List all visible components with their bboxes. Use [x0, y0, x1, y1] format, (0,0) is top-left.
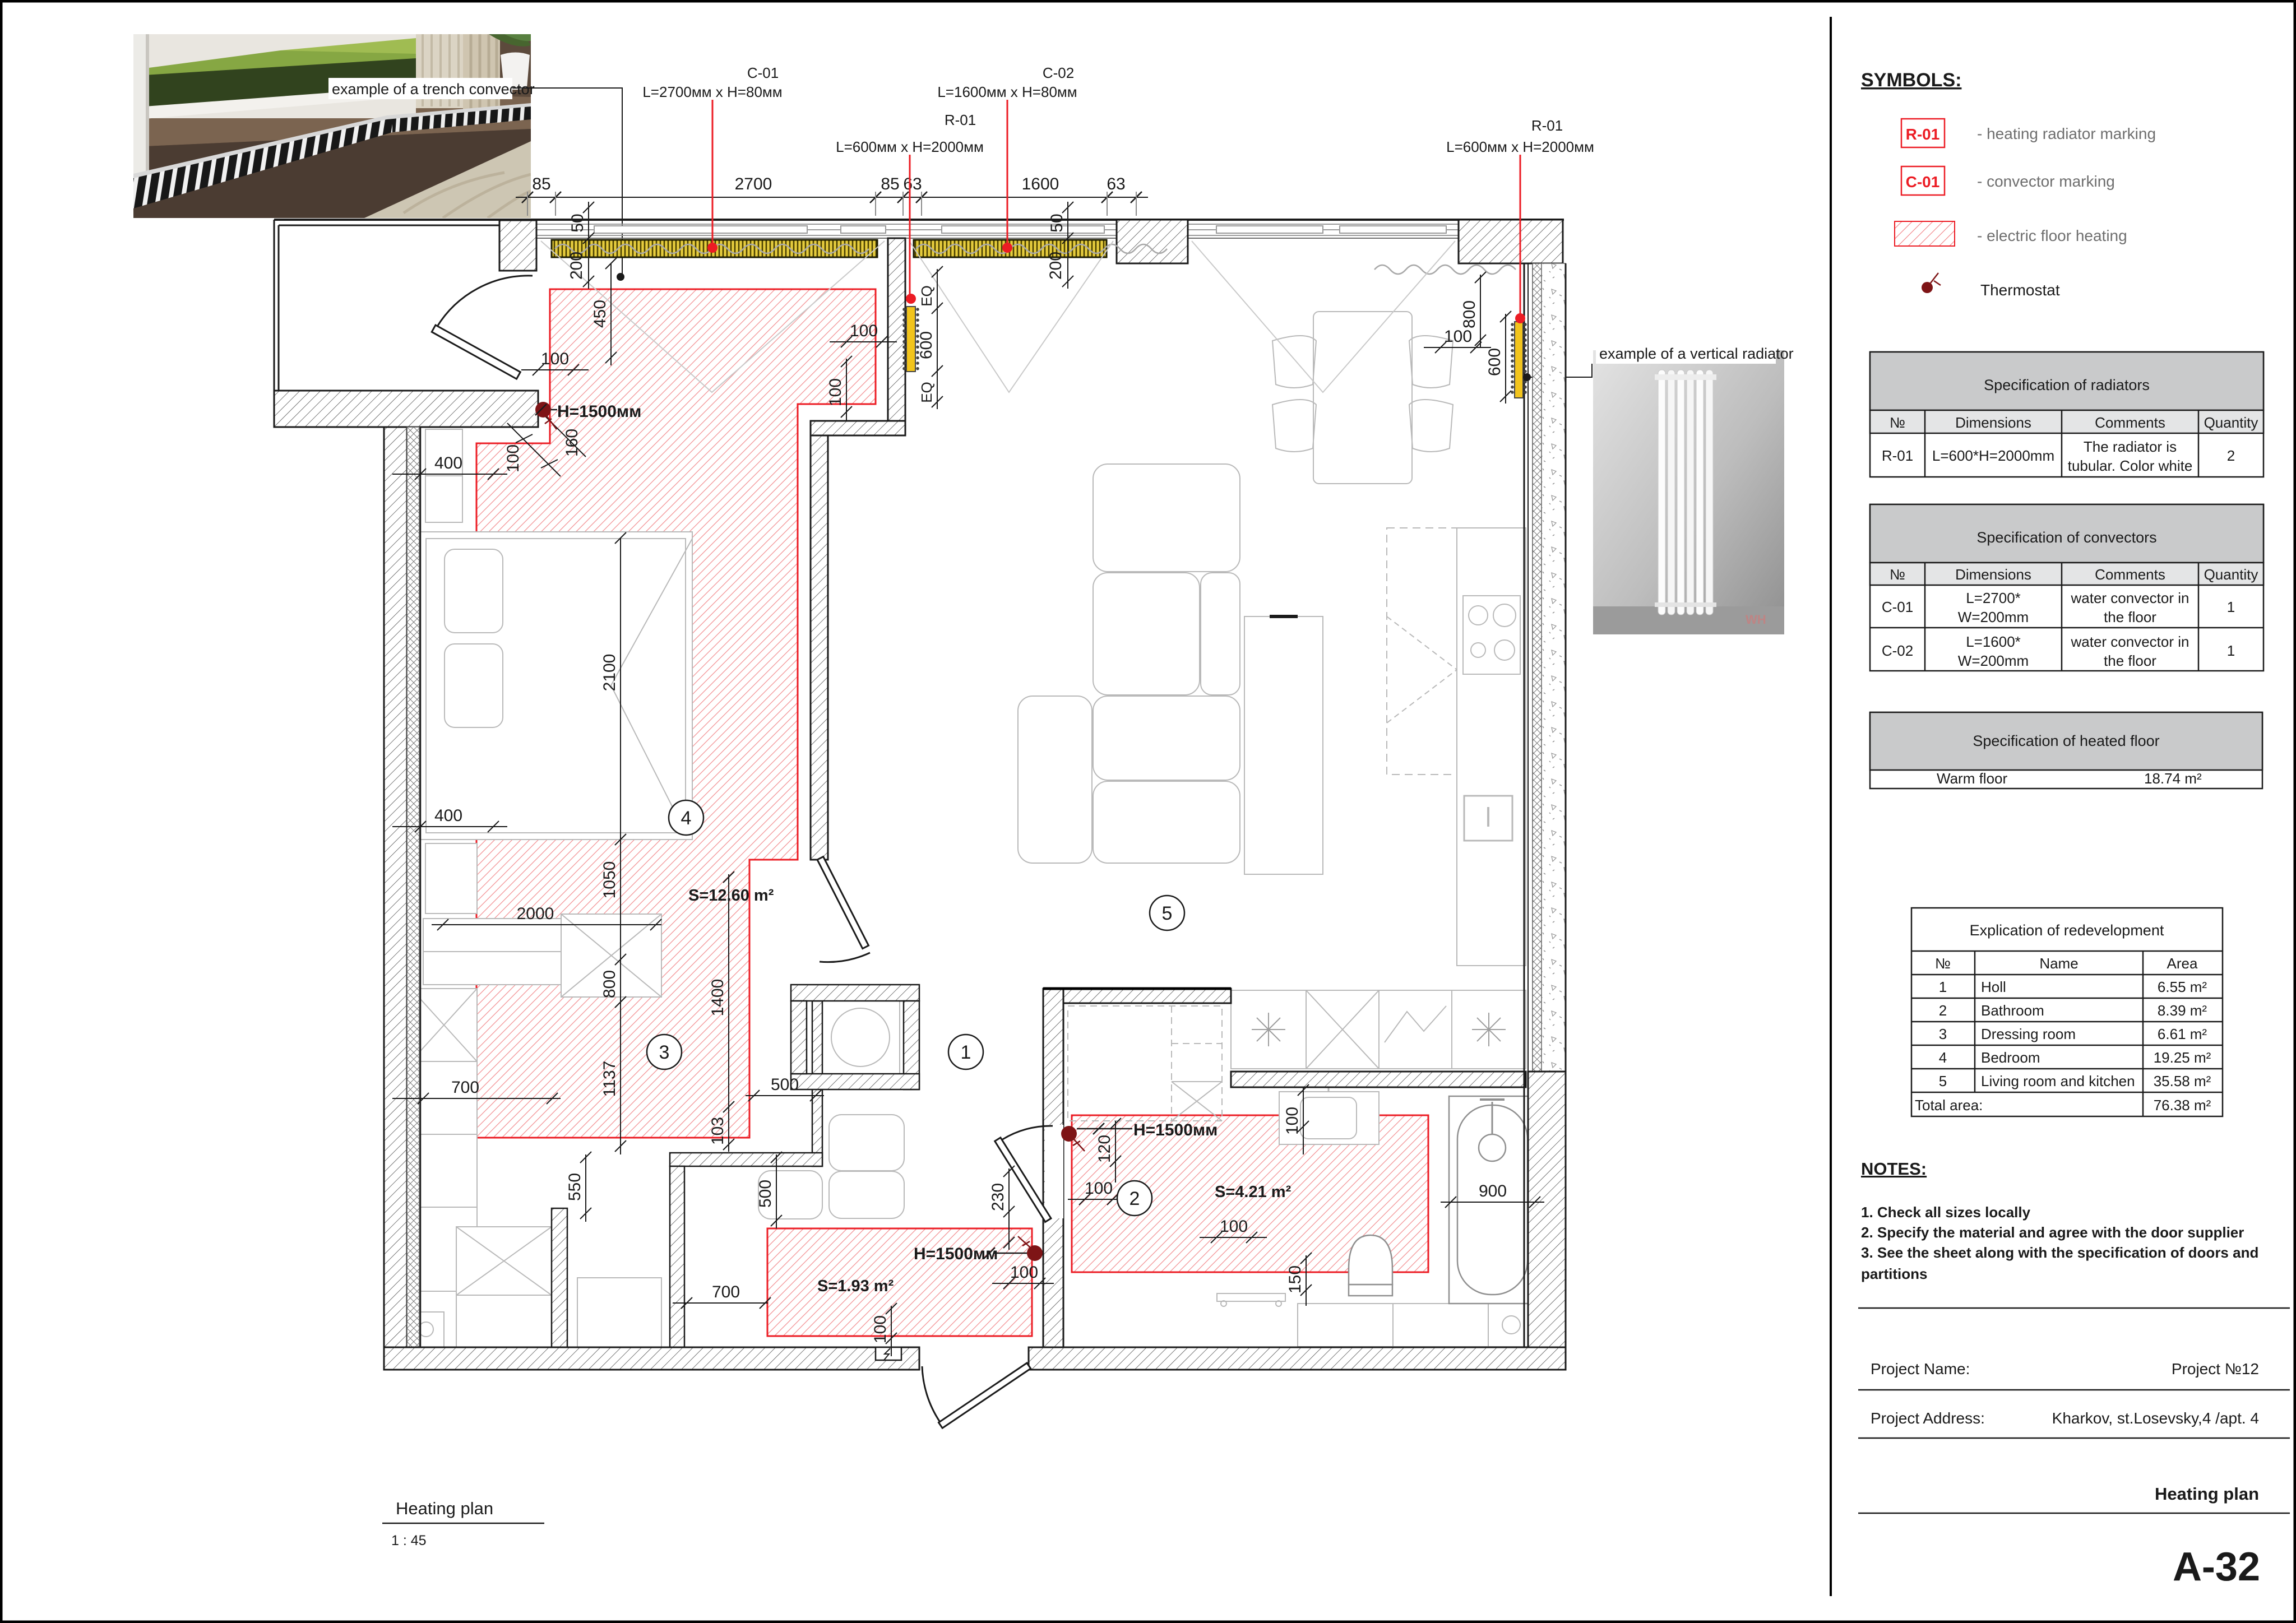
svg-text:500: 500: [756, 1180, 775, 1208]
svg-text:Specification of radiators: Specification of radiators: [1984, 377, 2150, 393]
svg-text:100: 100: [850, 322, 878, 340]
svg-text:800: 800: [1460, 300, 1479, 328]
svg-text:450: 450: [591, 300, 609, 328]
svg-text:1: 1: [961, 1042, 971, 1063]
svg-text:Holl: Holl: [1981, 979, 2006, 995]
svg-text:S=4.21 m²: S=4.21 m²: [1215, 1183, 1291, 1201]
svg-text:150: 150: [1286, 1265, 1304, 1293]
svg-text:50: 50: [1048, 214, 1066, 232]
svg-text:100: 100: [541, 350, 569, 368]
svg-text:1: 1: [2227, 642, 2235, 659]
svg-text:Dimensions: Dimensions: [1955, 414, 2031, 431]
svg-text:Bathroom: Bathroom: [1981, 1002, 2044, 1019]
svg-text:SYMBOLS:: SYMBOLS:: [1861, 69, 1961, 91]
svg-text:tubular. Color white: tubular. Color white: [2068, 457, 2193, 474]
svg-text:№: №: [1935, 955, 1951, 972]
svg-text:L=600мм x H=2000мм: L=600мм x H=2000мм: [836, 138, 984, 155]
svg-text:3: 3: [659, 1042, 670, 1063]
svg-text:1. Check all sizes locally: 1. Check all sizes locally: [1861, 1204, 2031, 1221]
svg-text:№: №: [1890, 566, 1905, 583]
svg-text:- heating radiator marking: - heating radiator marking: [1977, 125, 2156, 142]
svg-text:L=600*H=2000mm: L=600*H=2000mm: [1932, 447, 2054, 464]
svg-text:63: 63: [1107, 175, 1125, 193]
svg-text:900: 900: [1479, 1182, 1507, 1200]
svg-text:200: 200: [1047, 252, 1065, 280]
svg-text:76.38 m²: 76.38 m²: [2154, 1097, 2211, 1114]
svg-text:Dressing room: Dressing room: [1981, 1026, 2076, 1042]
svg-text:700: 700: [451, 1078, 479, 1097]
svg-text:EQ: EQ: [918, 382, 935, 403]
svg-text:1: 1: [1939, 979, 1947, 995]
svg-text:4: 4: [1939, 1049, 1947, 1066]
svg-text:2. Specify the material and ag: 2. Specify the material and agree with t…: [1861, 1224, 2244, 1241]
svg-text:Specification of convectors: Specification of convectors: [1976, 529, 2156, 546]
svg-text:R-01: R-01: [945, 112, 976, 128]
svg-text:L=1600*: L=1600*: [1966, 633, 2021, 650]
svg-text:100: 100: [1085, 1179, 1113, 1198]
svg-text:Heating plan: Heating plan: [2155, 1484, 2259, 1504]
svg-text:Comments: Comments: [2095, 414, 2165, 431]
svg-text:2100: 2100: [600, 654, 619, 692]
svg-text:H=1500мм: H=1500мм: [557, 402, 641, 421]
svg-text:H=1500мм: H=1500мм: [914, 1245, 998, 1263]
svg-text:103: 103: [709, 1117, 727, 1145]
svg-text:Thermostat: Thermostat: [1980, 281, 2060, 299]
svg-text:1050: 1050: [600, 861, 619, 899]
svg-text:550: 550: [566, 1173, 584, 1201]
svg-text:L=2700*: L=2700*: [1966, 590, 2021, 606]
svg-text:partitions: partitions: [1861, 1265, 1927, 1282]
svg-text:L=2700мм x H=80мм: L=2700мм x H=80мм: [642, 84, 782, 100]
svg-text:2000: 2000: [517, 905, 554, 923]
svg-text:Bedroom: Bedroom: [1981, 1049, 2040, 1066]
svg-text:3. See the sheet along with th: 3. See the sheet along with the specific…: [1861, 1244, 2258, 1261]
svg-text:1600: 1600: [1022, 175, 1059, 193]
svg-text:R-01: R-01: [1882, 447, 1913, 464]
svg-text:400: 400: [434, 806, 462, 825]
svg-text:Heating plan: Heating plan: [396, 1499, 493, 1518]
svg-text:600: 600: [917, 331, 936, 359]
svg-text:C-02: C-02: [1043, 64, 1074, 81]
svg-text:2700: 2700: [735, 175, 772, 193]
svg-text:Quantity: Quantity: [2204, 414, 2258, 431]
svg-text:Project Address:: Project Address:: [1871, 1409, 1985, 1427]
svg-text:NOTES:: NOTES:: [1861, 1159, 1927, 1179]
svg-text:Area: Area: [2167, 955, 2198, 972]
svg-text:C-01: C-01: [1882, 599, 1913, 615]
svg-text:1400: 1400: [709, 979, 727, 1017]
svg-text:example of a vertical radiator: example of a vertical radiator: [1599, 345, 1794, 362]
svg-text:S=1.93 m²: S=1.93 m²: [817, 1277, 894, 1295]
svg-text:Quantity: Quantity: [2204, 566, 2258, 583]
svg-text:example of a trench convector: example of a trench convector: [332, 81, 535, 98]
svg-text:Name: Name: [2039, 955, 2078, 972]
svg-text:1137: 1137: [600, 1061, 619, 1097]
svg-text:C-01: C-01: [747, 64, 779, 81]
svg-text:R-01: R-01: [1531, 117, 1563, 134]
svg-text:400: 400: [434, 454, 462, 472]
svg-text:L=600мм x H=2000мм: L=600мм x H=2000мм: [1446, 138, 1594, 155]
svg-text:Specification of heated floor: Specification of heated floor: [1973, 732, 2159, 749]
svg-text:Kharkov, st.Losevsky,4 /apt. 4: Kharkov, st.Losevsky,4 /apt. 4: [2052, 1409, 2259, 1427]
svg-text:6.55 m²: 6.55 m²: [2158, 979, 2207, 995]
svg-text:Living room and kitchen: Living room and kitchen: [1981, 1073, 2135, 1089]
svg-text:Comments: Comments: [2095, 566, 2165, 583]
svg-text:Explication of redevelopment: Explication of redevelopment: [1970, 922, 2164, 939]
svg-text:№: №: [1890, 414, 1905, 431]
svg-text:1: 1: [2227, 599, 2235, 615]
svg-text:4: 4: [681, 808, 692, 829]
svg-text:100: 100: [1444, 327, 1472, 346]
svg-text:water convector in: water convector in: [2071, 590, 2189, 606]
svg-text:Total area:: Total area:: [1915, 1097, 1983, 1114]
svg-text:Warm floor: Warm floor: [1937, 770, 2007, 787]
svg-text:230: 230: [989, 1183, 1007, 1211]
svg-text:100: 100: [504, 444, 522, 472]
svg-text:L=1600мм x H=80мм: L=1600мм x H=80мм: [937, 84, 1077, 100]
svg-text:800: 800: [600, 970, 619, 998]
svg-text:600: 600: [1485, 348, 1504, 376]
svg-text:85: 85: [881, 175, 899, 193]
svg-text:W=200mm: W=200mm: [1958, 609, 2029, 625]
svg-text:100: 100: [871, 1315, 890, 1343]
svg-text:3: 3: [1939, 1026, 1947, 1042]
svg-text:500: 500: [771, 1075, 799, 1094]
svg-text:water convector in: water convector in: [2071, 633, 2189, 650]
svg-text:2: 2: [1130, 1188, 1140, 1209]
svg-text:Project Name:: Project Name:: [1871, 1360, 1970, 1378]
svg-text:160: 160: [563, 429, 581, 457]
svg-text:200: 200: [567, 252, 586, 280]
svg-text:WH: WH: [1746, 613, 1766, 627]
svg-text:100: 100: [1220, 1217, 1248, 1236]
svg-text:63: 63: [903, 175, 922, 193]
svg-text:H=1500мм: H=1500мм: [1133, 1121, 1218, 1139]
svg-text:120: 120: [1095, 1135, 1114, 1163]
svg-text:85: 85: [532, 175, 550, 193]
svg-text:100: 100: [1010, 1263, 1038, 1282]
svg-text:5: 5: [1162, 903, 1173, 924]
svg-text:6.61 m²: 6.61 m²: [2158, 1026, 2207, 1042]
svg-text:100: 100: [826, 378, 845, 406]
svg-text:C-02: C-02: [1882, 642, 1913, 659]
svg-text:50: 50: [568, 214, 587, 232]
svg-text:C-01: C-01: [1906, 173, 1940, 191]
svg-text:5: 5: [1939, 1073, 1947, 1089]
svg-text:A-32: A-32: [2173, 1545, 2260, 1589]
svg-text:S=12.60 m²: S=12.60 m²: [688, 887, 774, 905]
svg-text:1 : 45: 1 : 45: [391, 1533, 427, 1548]
svg-text:The radiator is: The radiator is: [2084, 438, 2177, 455]
svg-text:the floor: the floor: [2104, 609, 2156, 625]
svg-text:700: 700: [712, 1283, 740, 1301]
svg-text:35.58 m²: 35.58 m²: [2154, 1073, 2211, 1089]
svg-text:19.25 m²: 19.25 m²: [2154, 1049, 2211, 1066]
svg-text:Project №12: Project №12: [2172, 1360, 2259, 1378]
svg-text:Dimensions: Dimensions: [1955, 566, 2031, 583]
svg-text:the floor: the floor: [2104, 652, 2156, 669]
svg-text:R-01: R-01: [1906, 126, 1940, 143]
svg-text:8.39 m²: 8.39 m²: [2158, 1002, 2207, 1019]
svg-text:EQ: EQ: [918, 285, 935, 307]
svg-text:2: 2: [2227, 447, 2235, 464]
svg-text:- convector marking: - convector marking: [1977, 173, 2115, 190]
svg-text:2: 2: [1939, 1002, 1947, 1019]
svg-text:- electric floor heating: - electric floor heating: [1977, 227, 2127, 244]
svg-text:18.74 m²: 18.74 m²: [2144, 770, 2202, 787]
svg-text:100: 100: [1283, 1107, 1302, 1135]
svg-text:W=200mm: W=200mm: [1958, 652, 2029, 669]
